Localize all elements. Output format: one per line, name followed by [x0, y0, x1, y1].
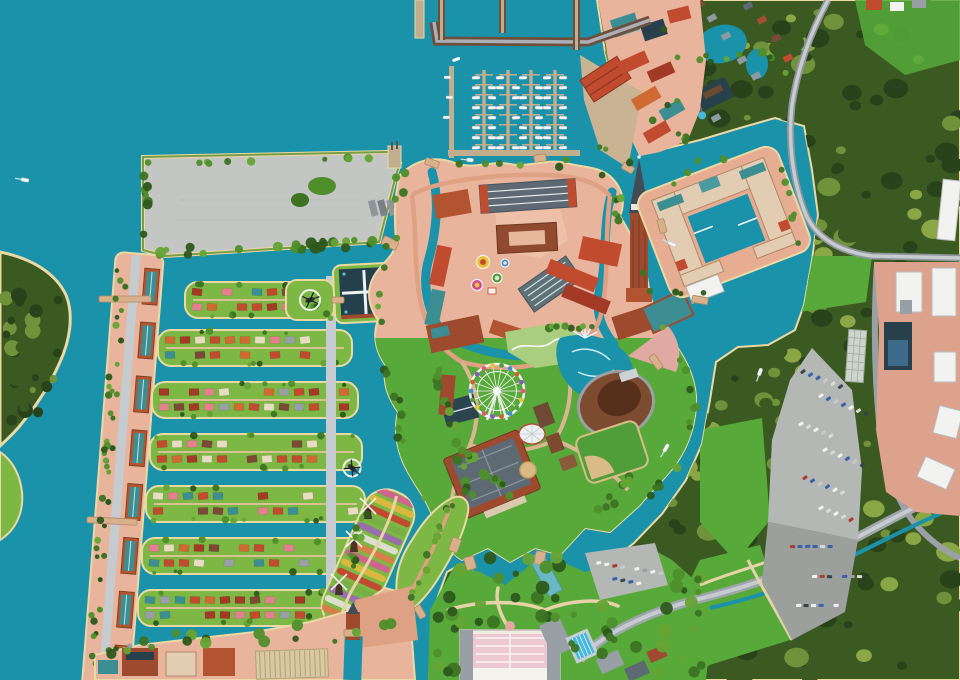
warehouse: [932, 268, 956, 316]
solar-panels: [888, 340, 908, 366]
map-stage: [0, 0, 960, 680]
warehouse: [934, 352, 956, 382]
polder-field: [143, 141, 401, 256]
tree-clump: [308, 177, 336, 195]
entrance-building: [98, 660, 118, 674]
base-pier: [448, 150, 580, 156]
greenhouse-rows: [256, 649, 329, 679]
shed: [900, 300, 912, 314]
greenhouse: [845, 329, 867, 382]
outer-dock: [449, 66, 454, 158]
cottage: [890, 2, 904, 11]
cottage: [912, 0, 926, 8]
palace-front: [460, 668, 560, 680]
grand-hotel-block: [479, 179, 577, 214]
entrance-building: [203, 648, 235, 676]
entrance-building: [166, 652, 196, 676]
tree-clump: [291, 193, 309, 207]
polder-surface: [143, 152, 400, 256]
town-hall: [496, 222, 557, 253]
round-garden: [520, 462, 536, 478]
canal-inlet: [343, 636, 363, 680]
polder-pier: [388, 146, 401, 168]
resort-map: [0, 0, 960, 680]
channel-pier: [415, 0, 424, 38]
cottage: [866, 0, 882, 10]
